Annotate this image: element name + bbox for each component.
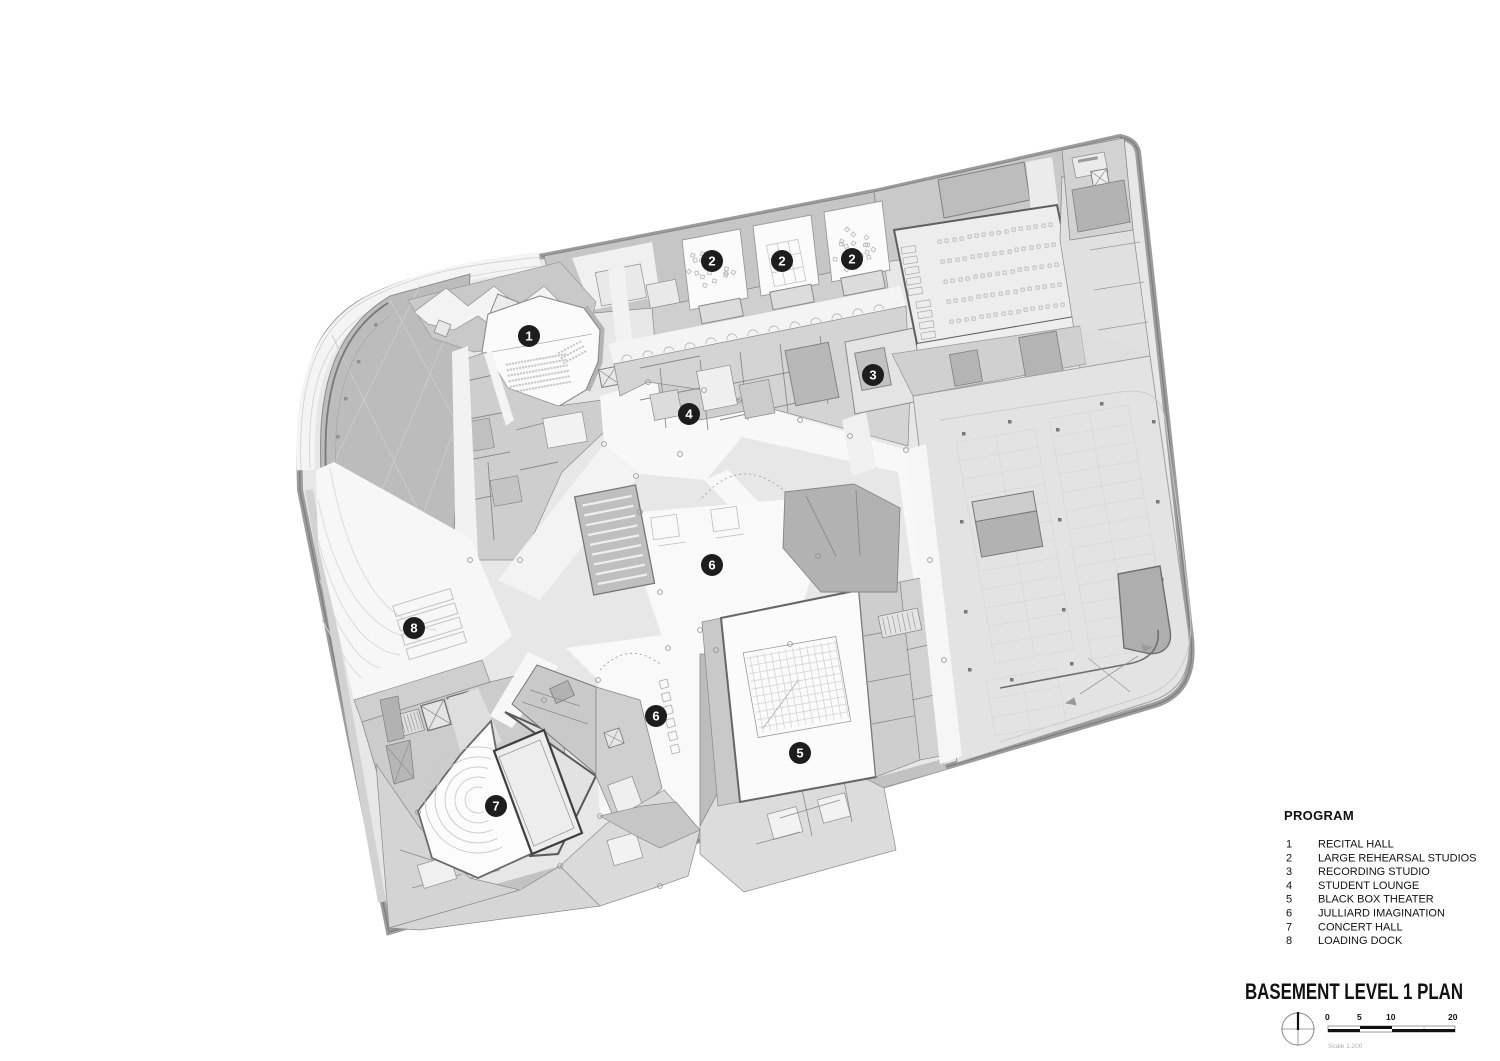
svg-text:3: 3 [869, 368, 876, 383]
svg-text:LARGE REHEARSAL STUDIOS: LARGE REHEARSAL STUDIOS [1318, 852, 1477, 864]
svg-text:2: 2 [848, 252, 855, 267]
svg-text:BASEMENT LEVEL 1 PLAN: BASEMENT LEVEL 1 PLAN [1245, 979, 1463, 1004]
svg-text:8: 8 [410, 621, 417, 636]
svg-text:BLACK BOX THEATER: BLACK BOX THEATER [1318, 894, 1434, 906]
svg-text:7: 7 [492, 799, 499, 814]
svg-text:8: 8 [1286, 935, 1292, 947]
svg-text:2: 2 [778, 254, 785, 269]
svg-text:PROGRAM: PROGRAM [1284, 808, 1354, 823]
svg-text:RECITAL HALL: RECITAL HALL [1318, 839, 1394, 851]
svg-text:10: 10 [1386, 1012, 1396, 1022]
svg-text:6: 6 [708, 558, 715, 573]
svg-text:5: 5 [1357, 1012, 1362, 1022]
svg-text:2: 2 [708, 254, 715, 269]
svg-text:5: 5 [1286, 894, 1292, 906]
svg-text:0: 0 [1325, 1012, 1330, 1022]
svg-text:4: 4 [685, 407, 693, 422]
svg-text:5: 5 [796, 746, 803, 761]
svg-text:7: 7 [1286, 921, 1292, 933]
svg-text:JULLIARD IMAGINATION: JULLIARD IMAGINATION [1318, 908, 1445, 920]
svg-text:6: 6 [1286, 908, 1292, 920]
svg-text:4: 4 [1286, 880, 1292, 892]
svg-text:1: 1 [1286, 839, 1292, 851]
svg-text:RECORDING STUDIO: RECORDING STUDIO [1318, 866, 1430, 878]
svg-text:3: 3 [1286, 866, 1292, 878]
svg-text:Scale 1:200: Scale 1:200 [1328, 1043, 1363, 1050]
svg-text:CONCERT HALL: CONCERT HALL [1318, 921, 1403, 933]
svg-text:STUDENT LOUNGE: STUDENT LOUNGE [1318, 880, 1419, 892]
svg-text:6: 6 [652, 709, 659, 724]
svg-text:1: 1 [525, 329, 532, 344]
svg-text:2: 2 [1286, 852, 1292, 864]
svg-text:20: 20 [1448, 1012, 1458, 1022]
svg-text:LOADING DOCK: LOADING DOCK [1318, 935, 1403, 947]
